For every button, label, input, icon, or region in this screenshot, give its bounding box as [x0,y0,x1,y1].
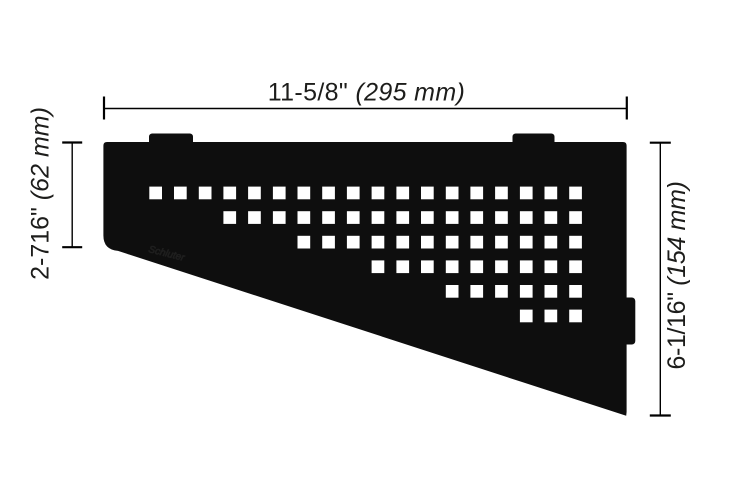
svg-text:11-5/8" (295 mm): 11-5/8" (295 mm) [268,79,465,107]
svg-text:2-716" (62 mm): 2-716" (62 mm) [27,107,55,280]
svg-text:6-1/16" (154 mm): 6-1/16" (154 mm) [663,181,691,369]
